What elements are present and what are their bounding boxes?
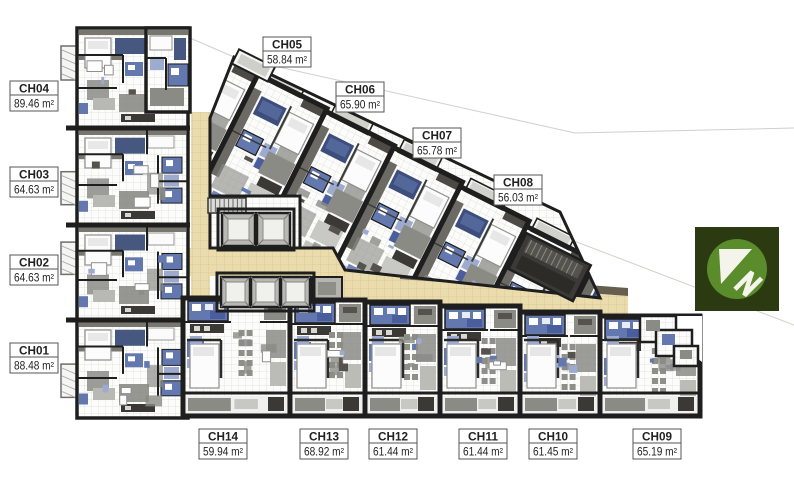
svg-text:CH07: CH07 bbox=[422, 129, 452, 143]
svg-text:CH12: CH12 bbox=[378, 430, 408, 444]
svg-text:61.44 m²: 61.44 m² bbox=[373, 447, 413, 459]
svg-text:CH04: CH04 bbox=[19, 82, 49, 96]
svg-text:65.78 m²: 65.78 m² bbox=[417, 146, 457, 158]
svg-text:CH08: CH08 bbox=[503, 176, 533, 190]
svg-text:CH09: CH09 bbox=[642, 430, 672, 444]
svg-text:88.48 m²: 88.48 m² bbox=[14, 361, 54, 373]
svg-text:CH05: CH05 bbox=[272, 38, 302, 52]
svg-text:61.45 m²: 61.45 m² bbox=[533, 447, 573, 459]
svg-text:64.63 m²: 64.63 m² bbox=[14, 185, 54, 197]
svg-text:65.19 m²: 65.19 m² bbox=[637, 447, 677, 459]
svg-text:CH10: CH10 bbox=[538, 430, 568, 444]
svg-text:61.44 m²: 61.44 m² bbox=[463, 447, 503, 459]
svg-text:CH13: CH13 bbox=[309, 430, 339, 444]
svg-text:68.92 m²: 68.92 m² bbox=[304, 447, 344, 459]
svg-text:89.46 m²: 89.46 m² bbox=[14, 99, 54, 111]
svg-text:CH14: CH14 bbox=[208, 430, 238, 444]
svg-text:CH11: CH11 bbox=[468, 430, 498, 444]
svg-text:CH06: CH06 bbox=[345, 83, 375, 97]
svg-text:CH03: CH03 bbox=[19, 168, 49, 182]
svg-text:59.94 m²: 59.94 m² bbox=[203, 447, 243, 459]
svg-text:58.84 m²: 58.84 m² bbox=[267, 55, 307, 67]
svg-text:56.03 m²: 56.03 m² bbox=[498, 193, 538, 205]
svg-text:65.90 m²: 65.90 m² bbox=[340, 100, 380, 112]
svg-text:64.63 m²: 64.63 m² bbox=[14, 273, 54, 285]
svg-text:CH02: CH02 bbox=[19, 256, 49, 270]
svg-text:CH01: CH01 bbox=[19, 344, 49, 358]
